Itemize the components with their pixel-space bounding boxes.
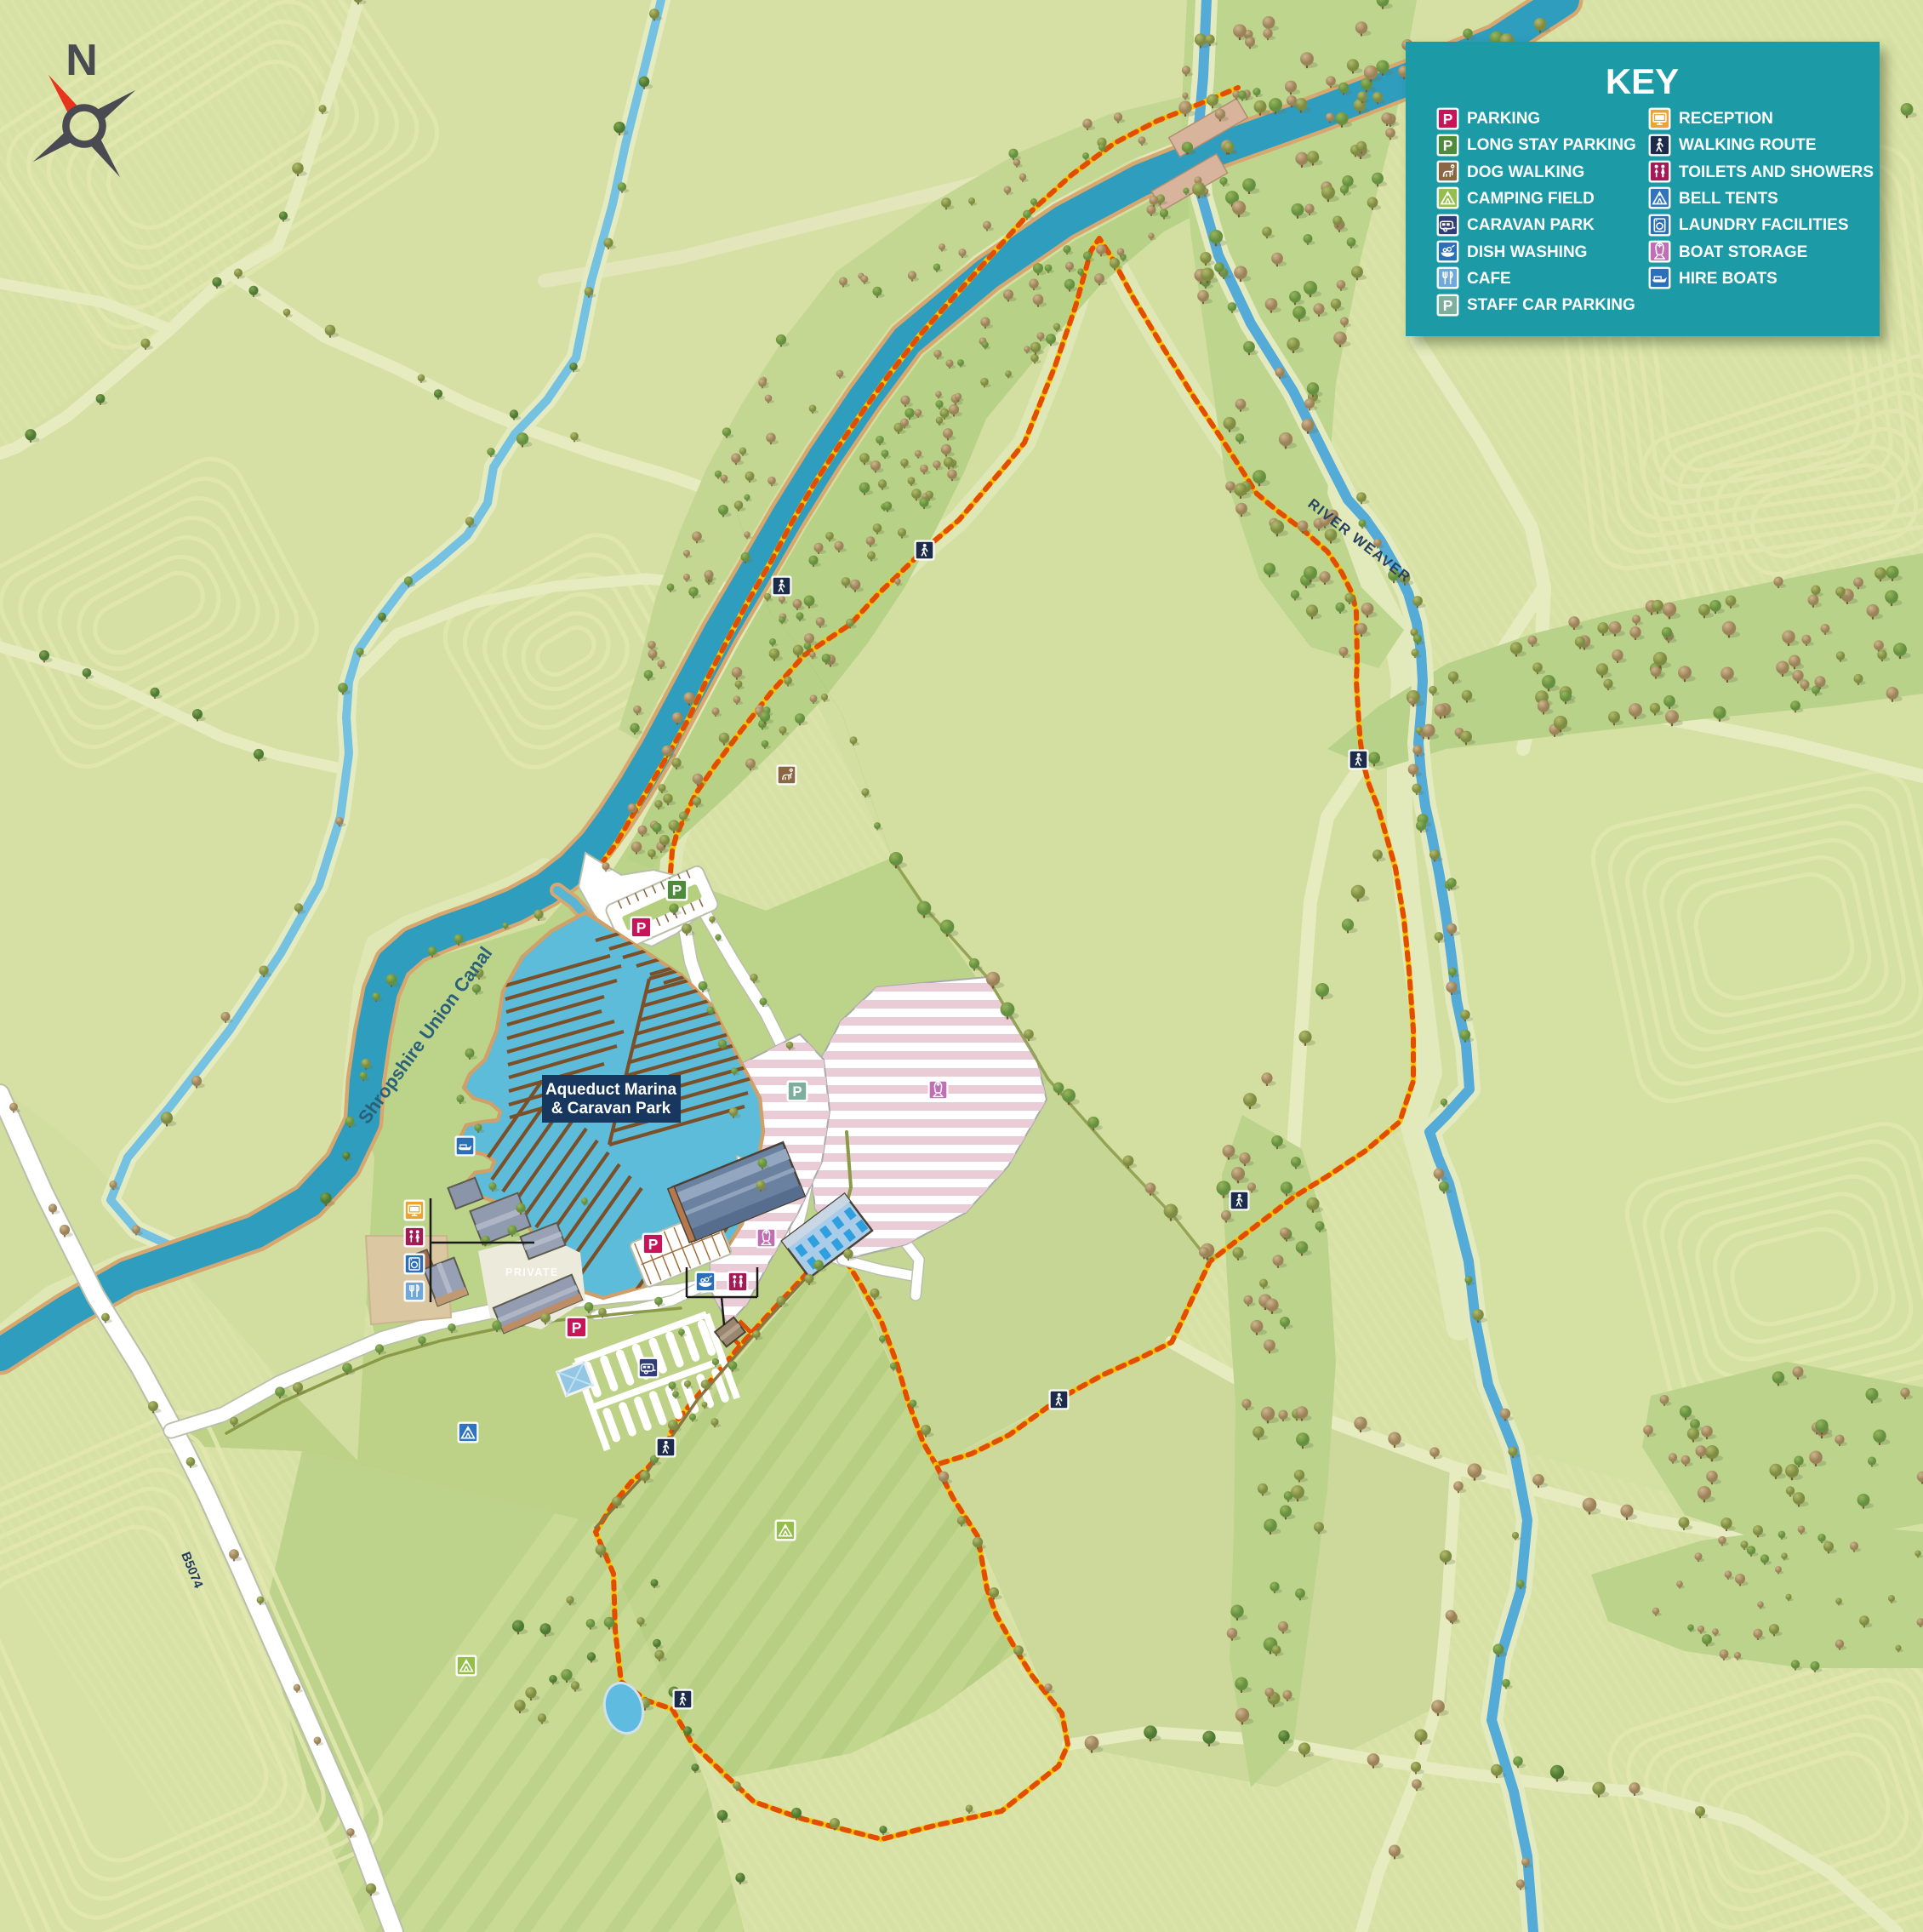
svg-text:LONG STAY PARKING: LONG STAY PARKING xyxy=(1467,136,1636,154)
svg-text:RECEPTION: RECEPTION xyxy=(1679,110,1773,128)
svg-text:BOAT STORAGE: BOAT STORAGE xyxy=(1679,243,1807,261)
svg-text:N: N xyxy=(66,36,98,85)
svg-text:TOILETS AND SHOWERS: TOILETS AND SHOWERS xyxy=(1679,163,1874,181)
svg-text:CAMPING FIELD: CAMPING FIELD xyxy=(1467,190,1595,208)
svg-text:DISH WASHING: DISH WASHING xyxy=(1467,243,1587,261)
svg-text:KEY: KEY xyxy=(1606,61,1679,101)
svg-text:STAFF CAR PARKING: STAFF CAR PARKING xyxy=(1467,296,1635,314)
svg-text:DOG WALKING: DOG WALKING xyxy=(1467,163,1584,181)
svg-text:Aqueduct Marina: Aqueduct Marina xyxy=(545,1081,677,1099)
svg-text:CARAVAN PARK: CARAVAN PARK xyxy=(1467,216,1595,234)
svg-text:PARKING: PARKING xyxy=(1467,110,1540,128)
svg-text:LAUNDRY FACILITIES: LAUNDRY FACILITIES xyxy=(1679,216,1849,234)
svg-text:PRIVATE: PRIVATE xyxy=(505,1266,559,1278)
svg-text:WALKING ROUTE: WALKING ROUTE xyxy=(1679,136,1817,154)
svg-text:HIRE BOATS: HIRE BOATS xyxy=(1679,270,1777,288)
svg-text:BELL TENTS: BELL TENTS xyxy=(1679,190,1778,208)
svg-text:& Caravan Park: & Caravan Park xyxy=(551,1100,671,1117)
svg-text:CAFE: CAFE xyxy=(1467,270,1511,288)
